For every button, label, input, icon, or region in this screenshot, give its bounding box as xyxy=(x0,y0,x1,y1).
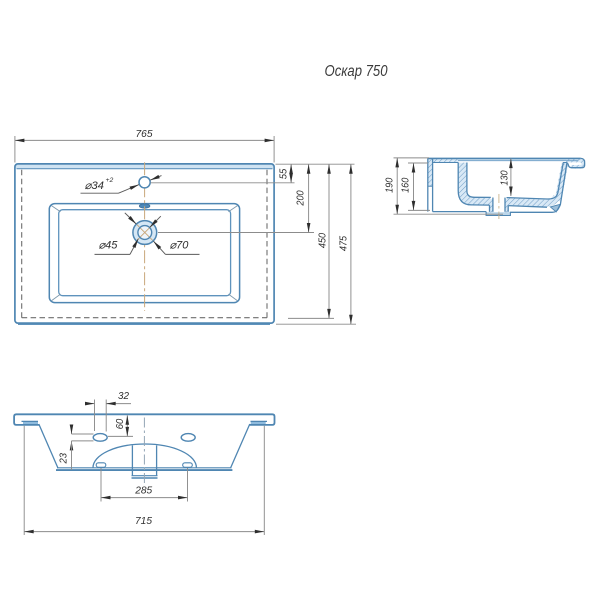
svg-text:160: 160 xyxy=(399,178,411,193)
svg-text:200: 200 xyxy=(295,190,307,206)
svg-text:715: 715 xyxy=(135,515,152,527)
svg-text:+2: +2 xyxy=(106,177,114,184)
svg-text:285: 285 xyxy=(134,484,152,496)
svg-text:450: 450 xyxy=(317,233,329,248)
svg-text:⌀70: ⌀70 xyxy=(170,240,190,252)
svg-text:Оскар 750: Оскар 750 xyxy=(325,63,388,80)
svg-text:130: 130 xyxy=(499,170,511,185)
svg-text:190: 190 xyxy=(384,178,396,193)
svg-text:55: 55 xyxy=(278,169,290,180)
svg-text:475: 475 xyxy=(338,236,350,251)
svg-text:765: 765 xyxy=(136,128,153,140)
svg-text:60: 60 xyxy=(114,419,126,430)
svg-text:⌀45: ⌀45 xyxy=(99,240,119,252)
svg-text:⌀34: ⌀34 xyxy=(85,180,105,192)
svg-text:32: 32 xyxy=(118,390,129,402)
svg-text:23: 23 xyxy=(58,453,70,465)
